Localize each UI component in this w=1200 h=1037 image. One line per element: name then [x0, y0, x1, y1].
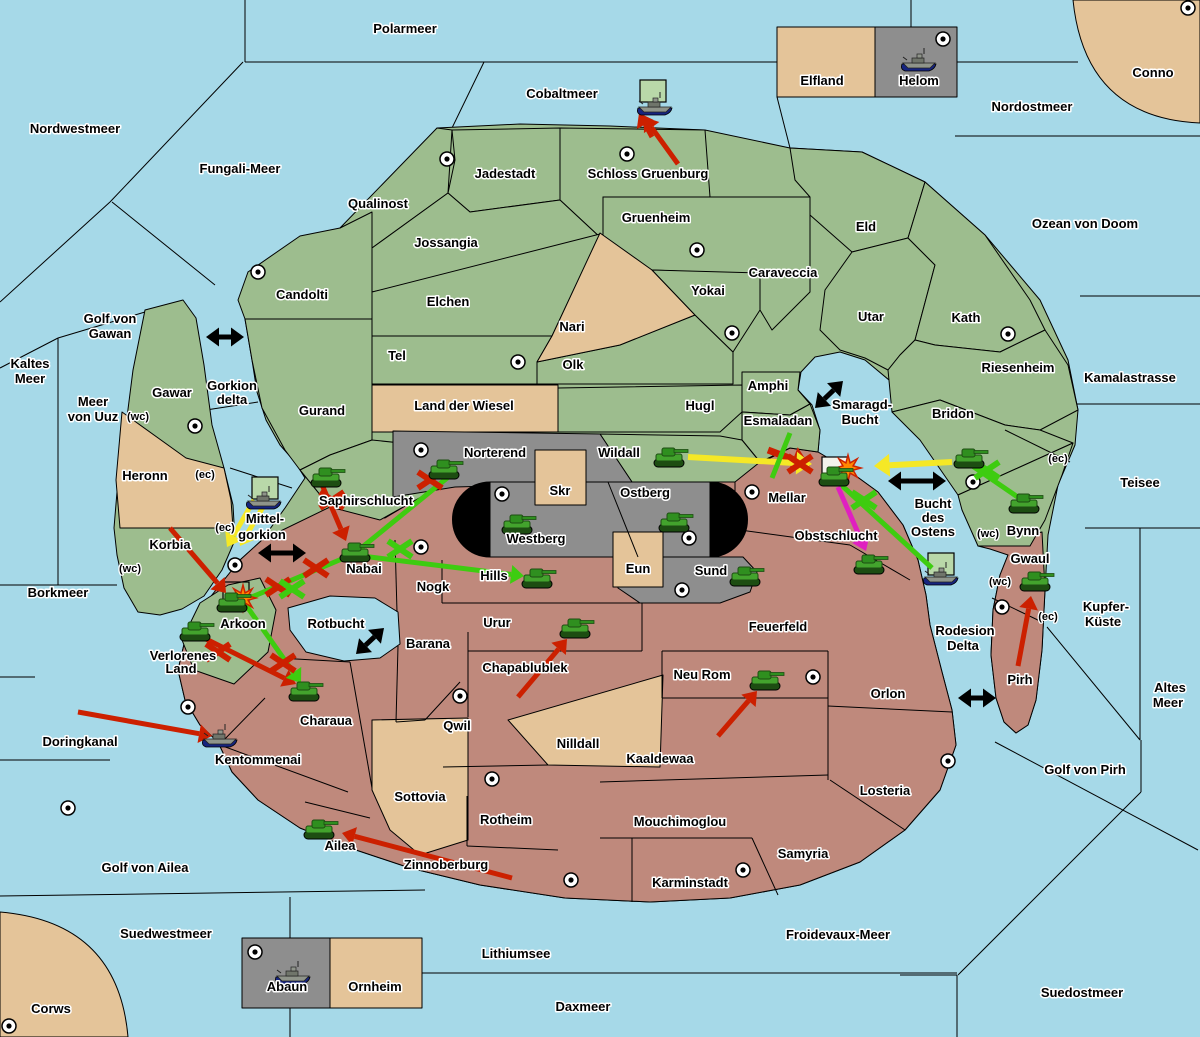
- capital-dot: [61, 801, 75, 815]
- capital-dot: [620, 147, 634, 161]
- capital-dot: [485, 772, 499, 786]
- capital-dot: [725, 326, 739, 340]
- map-label: Ailea: [324, 838, 356, 853]
- map-label: gorkion: [238, 527, 286, 542]
- map-label: Korbia: [149, 537, 191, 552]
- map-label: Rodesion: [935, 623, 994, 638]
- coast-tag-label: (ec): [1048, 453, 1068, 465]
- map-label: Yokai: [691, 283, 725, 298]
- map-label: Abaun: [267, 979, 308, 994]
- map-label: Obstschlucht: [794, 528, 878, 543]
- map-label: Ostberg: [620, 485, 670, 500]
- map-label: Sottovia: [394, 789, 446, 804]
- map-label: Saphirschlucht: [319, 493, 414, 508]
- map-label: Kath: [952, 310, 981, 325]
- capital-dot: [453, 689, 467, 703]
- map-label: Gruenheim: [622, 210, 691, 225]
- capital-dot: [188, 419, 202, 433]
- coast-tag-label: (wc): [119, 563, 141, 575]
- map-label: Golf von: [84, 311, 137, 326]
- map-label: Sund: [695, 563, 728, 578]
- map-label: Ostens: [911, 524, 955, 539]
- capital-dot: [228, 558, 242, 572]
- map-label: Feuerfeld: [749, 619, 808, 634]
- map-label: Jadestadt: [475, 166, 536, 181]
- region-ornheim-box[interactable]: [330, 938, 422, 1008]
- map-label: Neu Rom: [673, 667, 730, 682]
- capital-dot: [1181, 1, 1195, 15]
- map-label: Land: [165, 661, 196, 676]
- map-label: Heronn: [122, 468, 168, 483]
- map-label: Kaltes: [10, 356, 49, 371]
- map-label: Riesenheim: [982, 360, 1055, 375]
- map-label: Norterend: [464, 445, 526, 460]
- map-label: Delta: [947, 638, 980, 653]
- map-label: Esmaladan: [744, 413, 813, 428]
- map-label: Lithiumsee: [482, 946, 551, 961]
- map-label: Smaragd-: [832, 397, 892, 412]
- map-label: Samyria: [778, 846, 829, 861]
- capital-dot: [2, 1019, 16, 1033]
- map-label: Gwaul: [1010, 551, 1049, 566]
- map-label: Elfland: [800, 73, 843, 88]
- capital-dot: [564, 873, 578, 887]
- map-label: Kupfer-: [1083, 599, 1129, 614]
- map-label: Bucht: [915, 496, 953, 511]
- map-label: Pirh: [1007, 672, 1032, 687]
- map-label: Hills: [480, 568, 507, 583]
- map-label: Ornheim: [348, 979, 401, 994]
- capital-dot: [736, 863, 750, 877]
- coast-tag-label: (ec): [215, 522, 235, 534]
- map-label: Charaua: [300, 713, 353, 728]
- map-label: Mouchimoglou: [634, 814, 726, 829]
- map-label: Nilldall: [557, 736, 600, 751]
- coast-tag-label: (wc): [977, 528, 999, 540]
- map-label: Corws: [31, 1001, 71, 1016]
- map-label: Bynn: [1007, 523, 1040, 538]
- capital-dot: [675, 583, 689, 597]
- capital-dot: [248, 945, 262, 959]
- capital-dot: [936, 32, 950, 46]
- map-label: Suedostmeer: [1041, 985, 1123, 1000]
- capital-dot: [1001, 327, 1015, 341]
- map-label: Polarmeer: [373, 21, 437, 36]
- map-label: Qwil: [443, 718, 470, 733]
- coast-tag-label: (ec): [1038, 611, 1058, 623]
- map-label: Gurand: [299, 403, 345, 418]
- map-label: Borkmeer: [28, 585, 89, 600]
- map-label: Utar: [858, 309, 884, 324]
- map-label: Nordwestmeer: [30, 121, 120, 136]
- map-label: Daxmeer: [556, 999, 611, 1014]
- map-label: Karminstadt: [652, 875, 729, 890]
- map-label: Nari: [559, 319, 584, 334]
- map-label: Nordostmeer: [992, 99, 1073, 114]
- map-label: Tel: [388, 348, 406, 363]
- map-label: Nabai: [346, 561, 381, 576]
- map-label: Westberg: [507, 531, 566, 546]
- map-label: Bucht: [842, 412, 880, 427]
- capital-dot: [440, 152, 454, 166]
- map-label: Eld: [856, 219, 876, 234]
- capital-dot: [511, 355, 525, 369]
- map-label: Fungali-Meer: [200, 161, 281, 176]
- map-label: Olk: [563, 357, 585, 372]
- coast-tag-label: (wc): [127, 411, 149, 423]
- map-label: Rotheim: [480, 812, 532, 827]
- capital-dot: [745, 485, 759, 499]
- map-label: Orlon: [871, 686, 906, 701]
- capital-dot: [806, 670, 820, 684]
- map-label: Gawan: [89, 326, 132, 341]
- map-label: Kamalastrasse: [1084, 370, 1176, 385]
- capital-dot: [690, 243, 704, 257]
- capital-dot: [251, 265, 265, 279]
- map-label: Altes: [1154, 680, 1186, 695]
- map-label: Meer: [1153, 695, 1183, 710]
- map-label: von Uuz: [68, 409, 119, 424]
- map-label: Mittel-: [246, 511, 284, 526]
- capital-dot: [682, 531, 696, 545]
- game-map: PolarmeerNordwestmeerFungali-MeerCobaltm…: [0, 0, 1200, 1037]
- map-label: Bridon: [932, 406, 974, 421]
- map-label: delta: [217, 392, 248, 407]
- map-label: Candolti: [276, 287, 328, 302]
- map-label: Hugl: [686, 398, 715, 413]
- map-label: Land der Wiesel: [414, 398, 514, 413]
- map-label: Urur: [483, 615, 510, 630]
- map-label: Küste: [1085, 614, 1121, 629]
- map-label: Barana: [406, 636, 451, 651]
- map-label: Suedwestmeer: [120, 926, 212, 941]
- map-label: Caraveccia: [749, 265, 818, 280]
- map-label: Helom: [899, 73, 939, 88]
- map-label: Gawar: [152, 385, 192, 400]
- war-map-canvas[interactable]: PolarmeerNordwestmeerFungali-MeerCobaltm…: [0, 0, 1200, 1037]
- map-label: Gorkion: [207, 378, 257, 393]
- map-label: Mellar: [768, 490, 806, 505]
- map-label: Schloss Gruenburg: [588, 166, 709, 181]
- region-eun-box[interactable]: [613, 532, 663, 587]
- map-label: Froidevaux-Meer: [786, 927, 890, 942]
- map-label: des: [922, 510, 944, 525]
- map-label: Jossangia: [414, 235, 478, 250]
- capital-dot: [414, 540, 428, 554]
- capital-dot: [995, 600, 1009, 614]
- map-label: Kentommenai: [215, 752, 301, 767]
- capital-dot: [941, 754, 955, 768]
- map-label: Ozean von Doom: [1032, 216, 1138, 231]
- map-label: Wildall: [598, 445, 640, 460]
- map-label: Nogk: [417, 579, 450, 594]
- map-label: Elchen: [427, 294, 470, 309]
- map-label: Meer: [78, 394, 108, 409]
- map-label: Golf von Pirh: [1044, 762, 1126, 777]
- coast-tag-label: (wc): [989, 576, 1011, 588]
- map-label: Golf von Ailea: [102, 860, 190, 875]
- coast-tag-label: (ec): [195, 469, 215, 481]
- map-label: Skr: [550, 483, 571, 498]
- map-label: Qualinost: [348, 196, 409, 211]
- map-label: Cobaltmeer: [526, 86, 598, 101]
- map-label: Losteria: [860, 783, 911, 798]
- map-label: Kaaldewaa: [626, 751, 694, 766]
- map-label: Conno: [1132, 65, 1173, 80]
- map-label: Chapablublek: [482, 660, 568, 675]
- map-label: Zinnoberburg: [404, 857, 489, 872]
- map-label: Teisee: [1120, 475, 1160, 490]
- map-label: Arkoon: [220, 616, 266, 631]
- map-label: Doringkanal: [42, 734, 117, 749]
- map-label: Rotbucht: [307, 616, 365, 631]
- map-label: Meer: [15, 371, 45, 386]
- capital-dot: [414, 443, 428, 457]
- capital-dot: [181, 700, 195, 714]
- map-label: Amphi: [748, 378, 788, 393]
- map-label: Eun: [626, 561, 651, 576]
- capital-dot: [495, 487, 509, 501]
